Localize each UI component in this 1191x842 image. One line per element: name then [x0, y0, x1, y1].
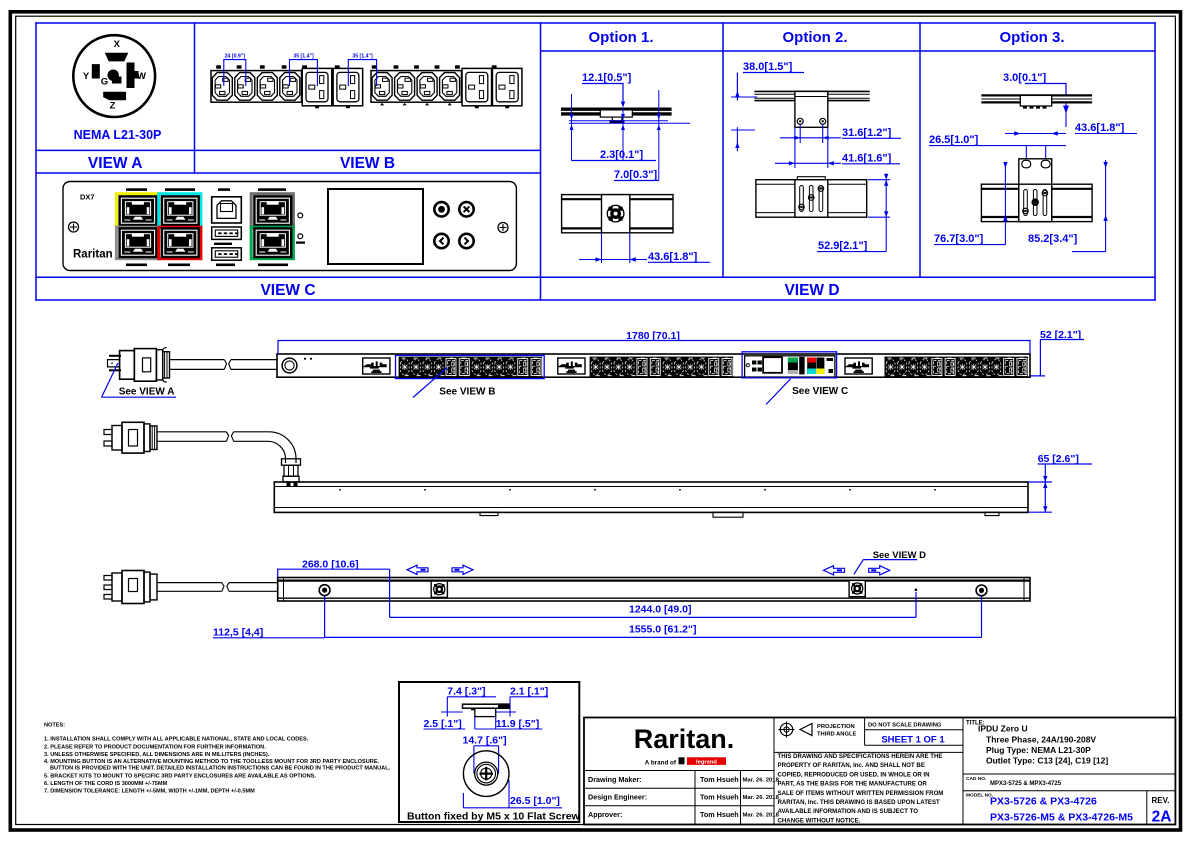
- svg-text:Mar. 26. 2018: Mar. 26. 2018: [743, 795, 780, 801]
- svg-text:11.9 [.5"]: 11.9 [.5"]: [496, 718, 540, 730]
- svg-text:3. UNLESS OTHERWISE SPECIFIED,: 3. UNLESS OTHERWISE SPECIFIED, ALL DIMEN…: [44, 752, 270, 758]
- svg-text:W: W: [137, 71, 146, 82]
- svg-text:CHANGE WITHOUT NOTICE.: CHANGE WITHOUT NOTICE.: [778, 817, 861, 824]
- svg-text:Three Phase, 24A/190-208V: Three Phase, 24A/190-208V: [986, 735, 1096, 745]
- svg-text:7. DIMENSION TOLERANCE: LENGTH: 7. DIMENSION TOLERANCE: LENGTH +/-5MM, W…: [44, 789, 255, 795]
- svg-text:5. BRACKET KITS TO MOUNT TO SP: 5. BRACKET KITS TO MOUNT TO SPECIFIC 3RD…: [44, 774, 316, 780]
- svg-text:76.7[3.0"]: 76.7[3.0"]: [934, 233, 984, 245]
- svg-text:26.5[1.0"]: 26.5[1.0"]: [929, 134, 979, 146]
- svg-text:268.0 [10.6]: 268.0 [10.6]: [302, 558, 359, 570]
- svg-text:Approver:: Approver:: [588, 810, 622, 819]
- svg-text:2.3[0.1"]: 2.3[0.1"]: [600, 149, 643, 161]
- svg-text:Button fixed by M5 x 10 Flat S: Button fixed by M5 x 10 Flat Screw: [407, 811, 581, 823]
- svg-text:G: G: [101, 77, 108, 88]
- svg-text:AVAILABLE INFORMATION AND IS S: AVAILABLE INFORMATION AND IS SUBJECT TO: [778, 808, 919, 815]
- svg-text:Tom Hsueh: Tom Hsueh: [700, 775, 739, 784]
- svg-text:Z: Z: [110, 101, 116, 112]
- svg-text:Design Engineer:: Design Engineer:: [588, 793, 647, 802]
- svg-text:VIEW A: VIEW A: [88, 155, 143, 172]
- svg-text:52.9[2.1"]: 52.9[2.1"]: [818, 240, 868, 252]
- svg-text:Raritan.: Raritan.: [634, 724, 735, 754]
- svg-text:2.5 [.1"]: 2.5 [.1"]: [424, 718, 462, 730]
- svg-text:PX3-5726 & PX3-4726: PX3-5726 & PX3-4726: [990, 796, 1097, 808]
- svg-text:1244.0 [49.0]: 1244.0 [49.0]: [629, 604, 691, 616]
- svg-text:43.6[1.8"]: 43.6[1.8"]: [1075, 122, 1125, 134]
- svg-text:26.5 [1.0"]: 26.5 [1.0"]: [510, 795, 560, 807]
- svg-text:2.1 [.1"]: 2.1 [.1"]: [510, 686, 548, 698]
- svg-text:COPIED, REPRODUCED OR USED, IN: COPIED, REPRODUCED OR USED, IN WHOLE OR …: [778, 771, 930, 778]
- svg-text:A brand of: A brand of: [645, 759, 677, 766]
- svg-text:35 [1.4"]: 35 [1.4"]: [293, 54, 314, 60]
- svg-text:Mar. 26. 2018: Mar. 26. 2018: [743, 778, 780, 784]
- svg-text:1. INSTALLATION SHALL COMPLY W: 1. INSTALLATION SHALL COMPLY WITH ALL AP…: [44, 737, 309, 743]
- svg-text:SHEET 1 OF 1: SHEET 1 OF 1: [881, 735, 945, 746]
- svg-text:Plug Type: NEMA L21-30P: Plug Type: NEMA L21-30P: [986, 745, 1091, 755]
- svg-text:41.6[1.6"]: 41.6[1.6"]: [842, 153, 892, 165]
- svg-text:See VIEW B: See VIEW B: [439, 387, 495, 398]
- svg-text:Raritan: Raritan: [73, 249, 113, 261]
- svg-text:85.2[3.4"]: 85.2[3.4"]: [1028, 233, 1078, 245]
- svg-text:65 [2.6"]: 65 [2.6"]: [1038, 453, 1079, 465]
- svg-text:PROJECTION: PROJECTION: [817, 724, 855, 730]
- svg-text:Tom Hsueh: Tom Hsueh: [700, 810, 739, 819]
- svg-text:SALE OF ITEMS WITHOUT WRITTEN: SALE OF ITEMS WITHOUT WRITTEN PERMISSION…: [778, 790, 944, 797]
- svg-text:Outlet Type: C13 [24], C19 [12: Outlet Type: C13 [24], C19 [12]: [986, 756, 1108, 766]
- svg-text:3.0[0.1"]: 3.0[0.1"]: [1003, 72, 1046, 84]
- svg-text:VIEW C: VIEW C: [260, 282, 315, 299]
- svg-text:DO NOT SCALE DRAWING: DO NOT SCALE DRAWING: [868, 723, 942, 729]
- svg-text:Option 2.: Option 2.: [783, 29, 848, 46]
- svg-text:See VIEW C: See VIEW C: [792, 386, 848, 397]
- svg-text:Mar. 26. 2018: Mar. 26. 2018: [743, 813, 780, 819]
- svg-text:43.6[1.8"]: 43.6[1.8"]: [648, 251, 698, 263]
- svg-text:112,5 [4,4]: 112,5 [4,4]: [213, 626, 263, 638]
- svg-text:6. LENGTH OF THE CORD IS 3000M: 6. LENGTH OF THE CORD IS 3000MM +/-75MM: [44, 781, 168, 787]
- svg-text:2A: 2A: [1152, 808, 1172, 825]
- svg-text:VIEW D: VIEW D: [784, 282, 839, 299]
- svg-text:1555.0 [61.2"]: 1555.0 [61.2"]: [629, 624, 696, 636]
- svg-text:THIS DRAWING AND SPECIFICATION: THIS DRAWING AND SPECIFICATIONS HEREIN A…: [778, 753, 943, 760]
- svg-text:38.0[1.5"]: 38.0[1.5"]: [743, 61, 793, 73]
- svg-text:legrand: legrand: [696, 760, 717, 766]
- svg-text:X: X: [114, 39, 121, 50]
- svg-text:MPX3-5725 & MPX3-4725: MPX3-5725 & MPX3-4725: [990, 781, 1062, 787]
- svg-text:Tom Hsueh: Tom Hsueh: [700, 793, 739, 802]
- svg-text:VIEW B: VIEW B: [340, 155, 395, 172]
- svg-text:Y: Y: [83, 71, 90, 82]
- svg-text:7.4 [.3"]: 7.4 [.3"]: [447, 686, 485, 698]
- svg-text:BUTTON IS PROVIDED WITH THE UN: BUTTON IS PROVIDED WITH THE UNIT. DETAIL…: [50, 766, 391, 772]
- svg-text:35 [1.4"]: 35 [1.4"]: [352, 54, 373, 60]
- svg-text:CAD NO.: CAD NO.: [966, 776, 986, 782]
- svg-text:24 [0.9"]: 24 [0.9"]: [225, 54, 246, 60]
- svg-text:12.1[0.5"]: 12.1[0.5"]: [582, 72, 632, 84]
- svg-text:Option 1.: Option 1.: [589, 29, 654, 46]
- svg-text:4. MOUNTING BUTTON IS AN ALTER: 4. MOUNTING BUTTON IS AN ALTERNATIVE MOU…: [44, 759, 380, 765]
- svg-text:IPDU Zero U: IPDU Zero U: [978, 724, 1028, 734]
- svg-text:DX7: DX7: [80, 193, 95, 202]
- svg-text:PART, AS THE BASIS FOR THE MAN: PART, AS THE BASIS FOR THE MANUFACTURE O…: [778, 781, 928, 788]
- svg-text:14.7 [.6"]: 14.7 [.6"]: [463, 735, 507, 747]
- svg-text:2. PLEASE REFER TO PRODUCT DOC: 2. PLEASE REFER TO PRODUCT DOCUMENTATION…: [44, 745, 266, 751]
- svg-text:PROPERTY OF RARITAN, Inc. AND: PROPERTY OF RARITAN, Inc. AND SHALL NOT …: [778, 762, 925, 769]
- svg-text:31.6[1.2"]: 31.6[1.2"]: [842, 127, 892, 139]
- svg-text:See VIEW A: See VIEW A: [119, 387, 175, 398]
- svg-text:RARITAN, Inc. THIS DRAWING IS: RARITAN, Inc. THIS DRAWING IS BASED UPON…: [778, 799, 941, 806]
- svg-text:Option 3.: Option 3.: [1000, 29, 1065, 46]
- svg-text:NEMA L21-30P: NEMA L21-30P: [74, 128, 162, 142]
- svg-text:Drawing Maker:: Drawing Maker:: [588, 775, 642, 784]
- svg-text:PX3-5726-M5 & PX3-4726-M5: PX3-5726-M5 & PX3-4726-M5: [990, 811, 1133, 823]
- svg-text:NOTES:: NOTES:: [44, 723, 65, 729]
- svg-text:THIRD ANGLE: THIRD ANGLE: [817, 732, 857, 738]
- svg-text:REV.: REV.: [1152, 796, 1170, 805]
- svg-text:7.0[0.3"]: 7.0[0.3"]: [614, 169, 657, 181]
